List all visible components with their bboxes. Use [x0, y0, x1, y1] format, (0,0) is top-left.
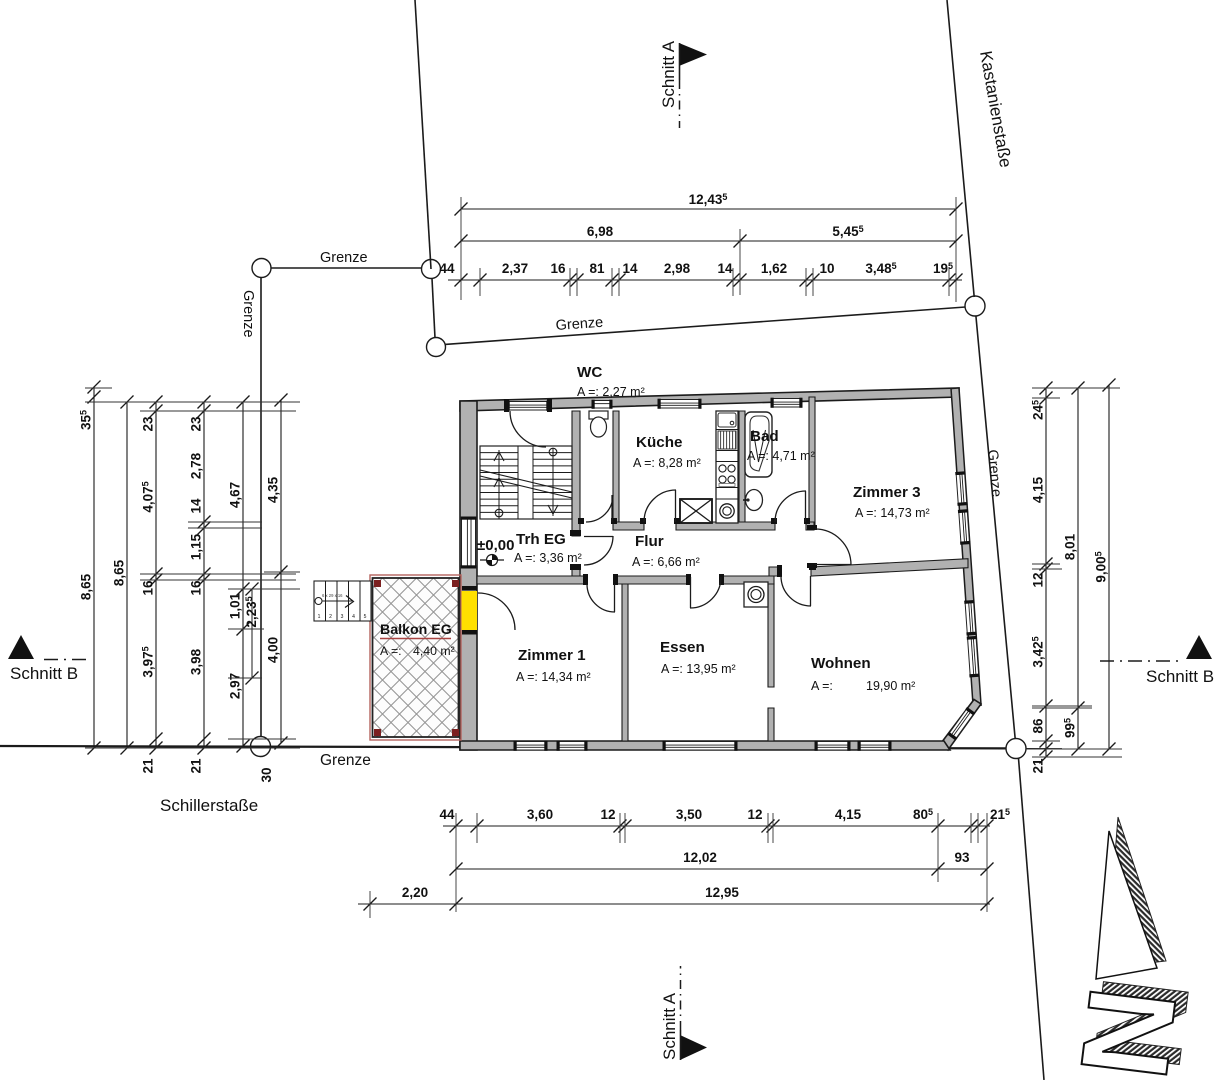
svg-text:21: 21	[141, 758, 156, 774]
svg-text:12,95: 12,95	[705, 885, 739, 900]
svg-text:4,35: 4,35	[266, 476, 281, 503]
svg-text:2: 2	[329, 614, 332, 620]
svg-text:4,67: 4,67	[228, 482, 243, 508]
svg-text:14: 14	[189, 498, 204, 514]
svg-text:16: 16	[189, 580, 204, 596]
svg-text:3,50: 3,50	[676, 807, 702, 822]
svg-text:Essen: Essen	[660, 639, 705, 656]
svg-text:Küche: Küche	[636, 434, 682, 451]
svg-text:21: 21	[189, 758, 204, 774]
svg-text:16: 16	[141, 580, 156, 596]
svg-text:4,15: 4,15	[835, 807, 862, 822]
svg-text:2,20: 2,20	[402, 885, 428, 900]
svg-text:86: 86	[1031, 718, 1046, 734]
svg-text:4,15: 4,15	[1031, 476, 1046, 503]
svg-text:8,01: 8,01	[1063, 533, 1078, 560]
svg-text:Bad: Bad	[750, 428, 779, 445]
svg-text:5: 5	[364, 614, 367, 620]
svg-text:4,00: 4,00	[266, 637, 281, 663]
svg-text:12,02: 12,02	[683, 850, 717, 865]
svg-text:A =: 8,28 m²: A =: 8,28 m²	[633, 456, 701, 470]
svg-text:1,01: 1,01	[228, 592, 243, 619]
svg-text:A =: 13,95 m²: A =: 13,95 m²	[661, 662, 736, 676]
svg-text:Grenze: Grenze	[555, 315, 604, 334]
svg-text:Schnitt A: Schnitt A	[659, 40, 678, 108]
svg-text:A =: 14,34 m²: A =: 14,34 m²	[516, 670, 591, 684]
svg-text:A =:: A =:	[380, 644, 402, 658]
svg-text:81: 81	[589, 261, 605, 276]
svg-text:1,62: 1,62	[761, 261, 787, 276]
svg-text:Balkon EG: Balkon EG	[380, 622, 452, 638]
svg-text:2,98: 2,98	[664, 261, 691, 276]
svg-text:±0,00: ±0,00	[477, 537, 514, 554]
svg-text:Grenze: Grenze	[320, 752, 371, 769]
svg-text:A =:: A =:	[811, 679, 833, 693]
svg-text:6 x 29 x 16: 6 x 29 x 16	[322, 593, 343, 598]
svg-text:1: 1	[318, 614, 321, 620]
svg-text:1,15: 1,15	[189, 533, 204, 560]
svg-text:16: 16	[550, 261, 566, 276]
svg-text:30: 30	[259, 767, 274, 782]
svg-text:A =: 3,36 m²: A =: 3,36 m²	[514, 551, 582, 565]
svg-text:2,97: 2,97	[228, 673, 243, 699]
svg-text:21: 21	[1031, 758, 1046, 774]
svg-text:3: 3	[341, 614, 344, 620]
svg-text:Schnitt B: Schnitt B	[1146, 667, 1214, 686]
svg-text:4: 4	[352, 614, 355, 620]
svg-text:14: 14	[622, 261, 638, 276]
svg-text:44: 44	[439, 261, 455, 276]
svg-text:A =: 6,66 m²: A =: 6,66 m²	[632, 555, 700, 569]
svg-text:Schnitt A: Schnitt A	[660, 992, 679, 1060]
svg-text:93: 93	[954, 850, 970, 865]
svg-text:Zimmer 1: Zimmer 1	[518, 647, 586, 664]
svg-text:6,98: 6,98	[587, 224, 614, 239]
svg-text:3,60: 3,60	[527, 807, 553, 822]
svg-text:Trh EG: Trh EG	[516, 531, 566, 548]
svg-text:Schillerstaße: Schillerstaße	[160, 796, 258, 815]
svg-text:12: 12	[747, 807, 762, 822]
svg-text:WC: WC	[577, 364, 602, 381]
svg-text:A =: 14,73 m²: A =: 14,73 m²	[855, 506, 930, 520]
svg-text:12: 12	[1031, 572, 1046, 587]
svg-text:Flur: Flur	[635, 533, 664, 550]
svg-text:Wohnen: Wohnen	[811, 655, 871, 672]
svg-text:Schnitt B: Schnitt B	[10, 664, 78, 683]
svg-text:44: 44	[439, 807, 455, 822]
svg-text:A =: 2,27 m²: A =: 2,27 m²	[577, 385, 645, 399]
svg-text:4,40 m²: 4,40 m²	[413, 644, 455, 658]
svg-text:Grenze: Grenze	[320, 250, 368, 266]
svg-text:12: 12	[600, 807, 615, 822]
svg-text:23: 23	[141, 416, 156, 432]
svg-text:12,435: 12,435	[689, 192, 728, 207]
svg-text:23: 23	[189, 416, 204, 432]
svg-text:2,78: 2,78	[189, 452, 204, 479]
svg-text:Zimmer 3: Zimmer 3	[853, 484, 921, 501]
svg-text:8,65: 8,65	[112, 559, 127, 586]
svg-text:8,65: 8,65	[79, 573, 94, 600]
svg-text:14: 14	[717, 261, 733, 276]
svg-text:3,98: 3,98	[189, 648, 204, 675]
svg-text:A =: 4,71 m²: A =: 4,71 m²	[747, 449, 815, 463]
svg-text:Grenze: Grenze	[240, 290, 256, 338]
svg-text:2,37: 2,37	[502, 261, 528, 276]
svg-text:N: N	[1054, 980, 1202, 1080]
svg-text:19,90 m²: 19,90 m²	[866, 679, 915, 693]
svg-text:10: 10	[819, 261, 834, 276]
